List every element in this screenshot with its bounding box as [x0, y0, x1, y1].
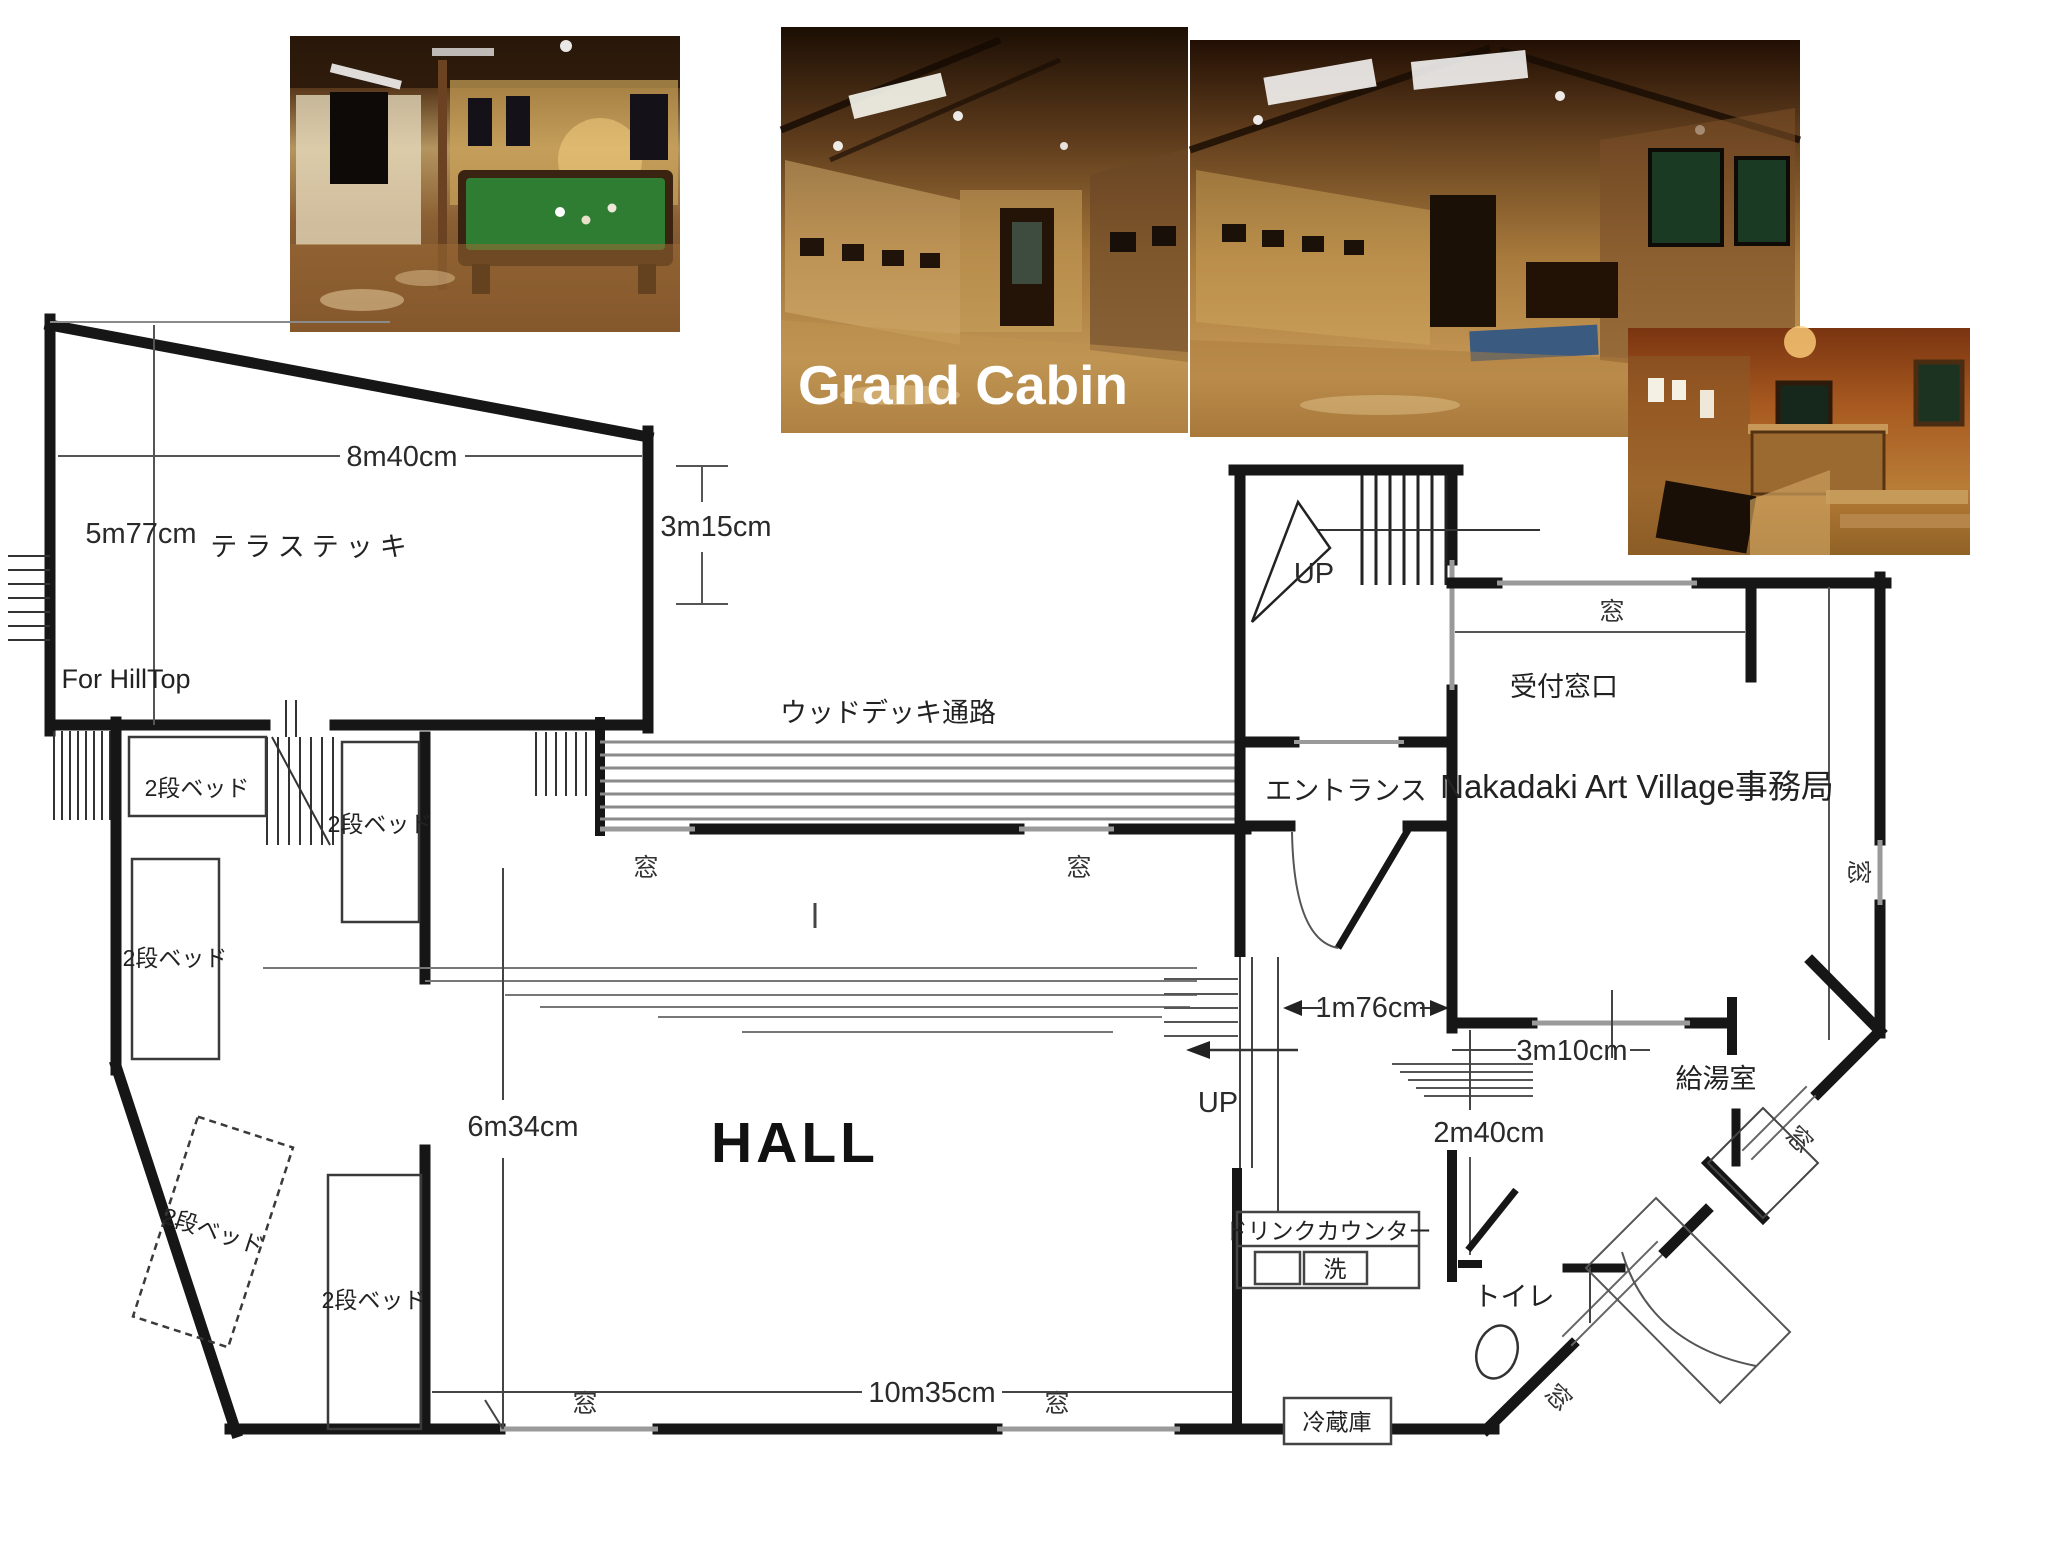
- terrace-left-steps: [54, 731, 110, 820]
- entrance-label: エントランス: [1265, 776, 1426, 806]
- office-steps: [1392, 1064, 1533, 1096]
- toilet-room: トイレ: [1452, 1150, 1555, 1384]
- gallery-photo-left: Grand Cabin: [781, 27, 1188, 433]
- terrace-width-dim: 8m40cm: [346, 441, 457, 473]
- terrace-label: テラステッキ: [210, 532, 413, 562]
- window-label: 窓: [1044, 1390, 1069, 1418]
- window-label: 窓: [1066, 854, 1091, 882]
- up-label: UP: [1198, 1087, 1238, 1119]
- reception-window-label: 受付窓口: [1510, 672, 1618, 702]
- hall-depth-dim: 6m34cm: [467, 1111, 578, 1143]
- steps-width-dim: 3m10cm: [1516, 1035, 1627, 1067]
- corridor-walls: [1237, 826, 1278, 1429]
- grand-cabin-caption: Grand Cabin: [798, 354, 1128, 416]
- bunk-bed-rotated: 2段ベッド: [131, 1116, 296, 1348]
- corridor-width-dim: 1m76cm: [1283, 992, 1449, 1024]
- southeast-corner-walls: [1487, 1211, 1706, 1429]
- terrace-door-steps: [267, 700, 333, 845]
- window-label: 窓: [1599, 598, 1624, 626]
- reception-photo: [1628, 326, 1970, 555]
- entrance-door-swing: [1292, 832, 1338, 948]
- grand-cabin-floorplan: Grand Cabin: [0, 0, 2064, 1548]
- steps-depth-dim: 2m40cm: [1433, 1117, 1544, 1149]
- kitchen-label: 給湯室: [1676, 1064, 1757, 1094]
- kitchen-door-swing: [1622, 1252, 1756, 1366]
- toilet-bowl: [1470, 1320, 1525, 1384]
- window-label: 窓: [1844, 859, 1872, 884]
- bunk-bed-label: 2段ベッド: [145, 775, 250, 801]
- hilltop-steps: [8, 556, 50, 640]
- office-label: Nakadaki Art Village事務局: [1440, 768, 1834, 805]
- wash-label: 洗: [1324, 1256, 1347, 1282]
- bunk-beds: [129, 737, 421, 1429]
- bunk-bed-label: 2段ベッド: [322, 1287, 427, 1313]
- floorplan-page: Grand Cabin: [0, 0, 2064, 1548]
- terrace-right-dim: 3m15cm: [660, 511, 771, 543]
- bunk-bed-label: 2段ベッド: [123, 945, 228, 971]
- terrace-deck: [50, 319, 648, 831]
- toilet-label: トイレ: [1474, 1282, 1555, 1312]
- hall-windows: [500, 829, 1388, 1429]
- drink-counter-label: ドリンクカウンター: [1225, 1218, 1432, 1244]
- billiard-room-photo: [290, 36, 680, 332]
- corridor-width-text: 1m76cm: [1315, 992, 1426, 1024]
- entrance-door-leaf: [1338, 830, 1408, 948]
- corridor-steps: [1164, 979, 1238, 1036]
- terrace-height-dim: 5m77cm: [85, 518, 196, 550]
- deck-passage-label: ウッドデッキ通路: [780, 698, 996, 728]
- window-label: 窓: [633, 854, 658, 882]
- window-label: 窓: [572, 1390, 597, 1418]
- hall-width-dim: 10m35cm: [868, 1377, 995, 1409]
- bunk-bed-label: 2段ベッド: [328, 811, 433, 837]
- terrace-right-steps: [536, 732, 586, 796]
- up-label: UP: [1294, 558, 1334, 590]
- hilltop-note: For HillTop: [61, 664, 190, 694]
- hall-label: HALL: [711, 1111, 879, 1175]
- window-label: 窓: [1780, 1121, 1817, 1158]
- fridge-label: 冷蔵庫: [1303, 1409, 1372, 1435]
- window-label: 窓: [1539, 1379, 1576, 1416]
- hall-up-arrowhead: [1186, 1041, 1210, 1059]
- wood-deck-passage: [600, 742, 1240, 819]
